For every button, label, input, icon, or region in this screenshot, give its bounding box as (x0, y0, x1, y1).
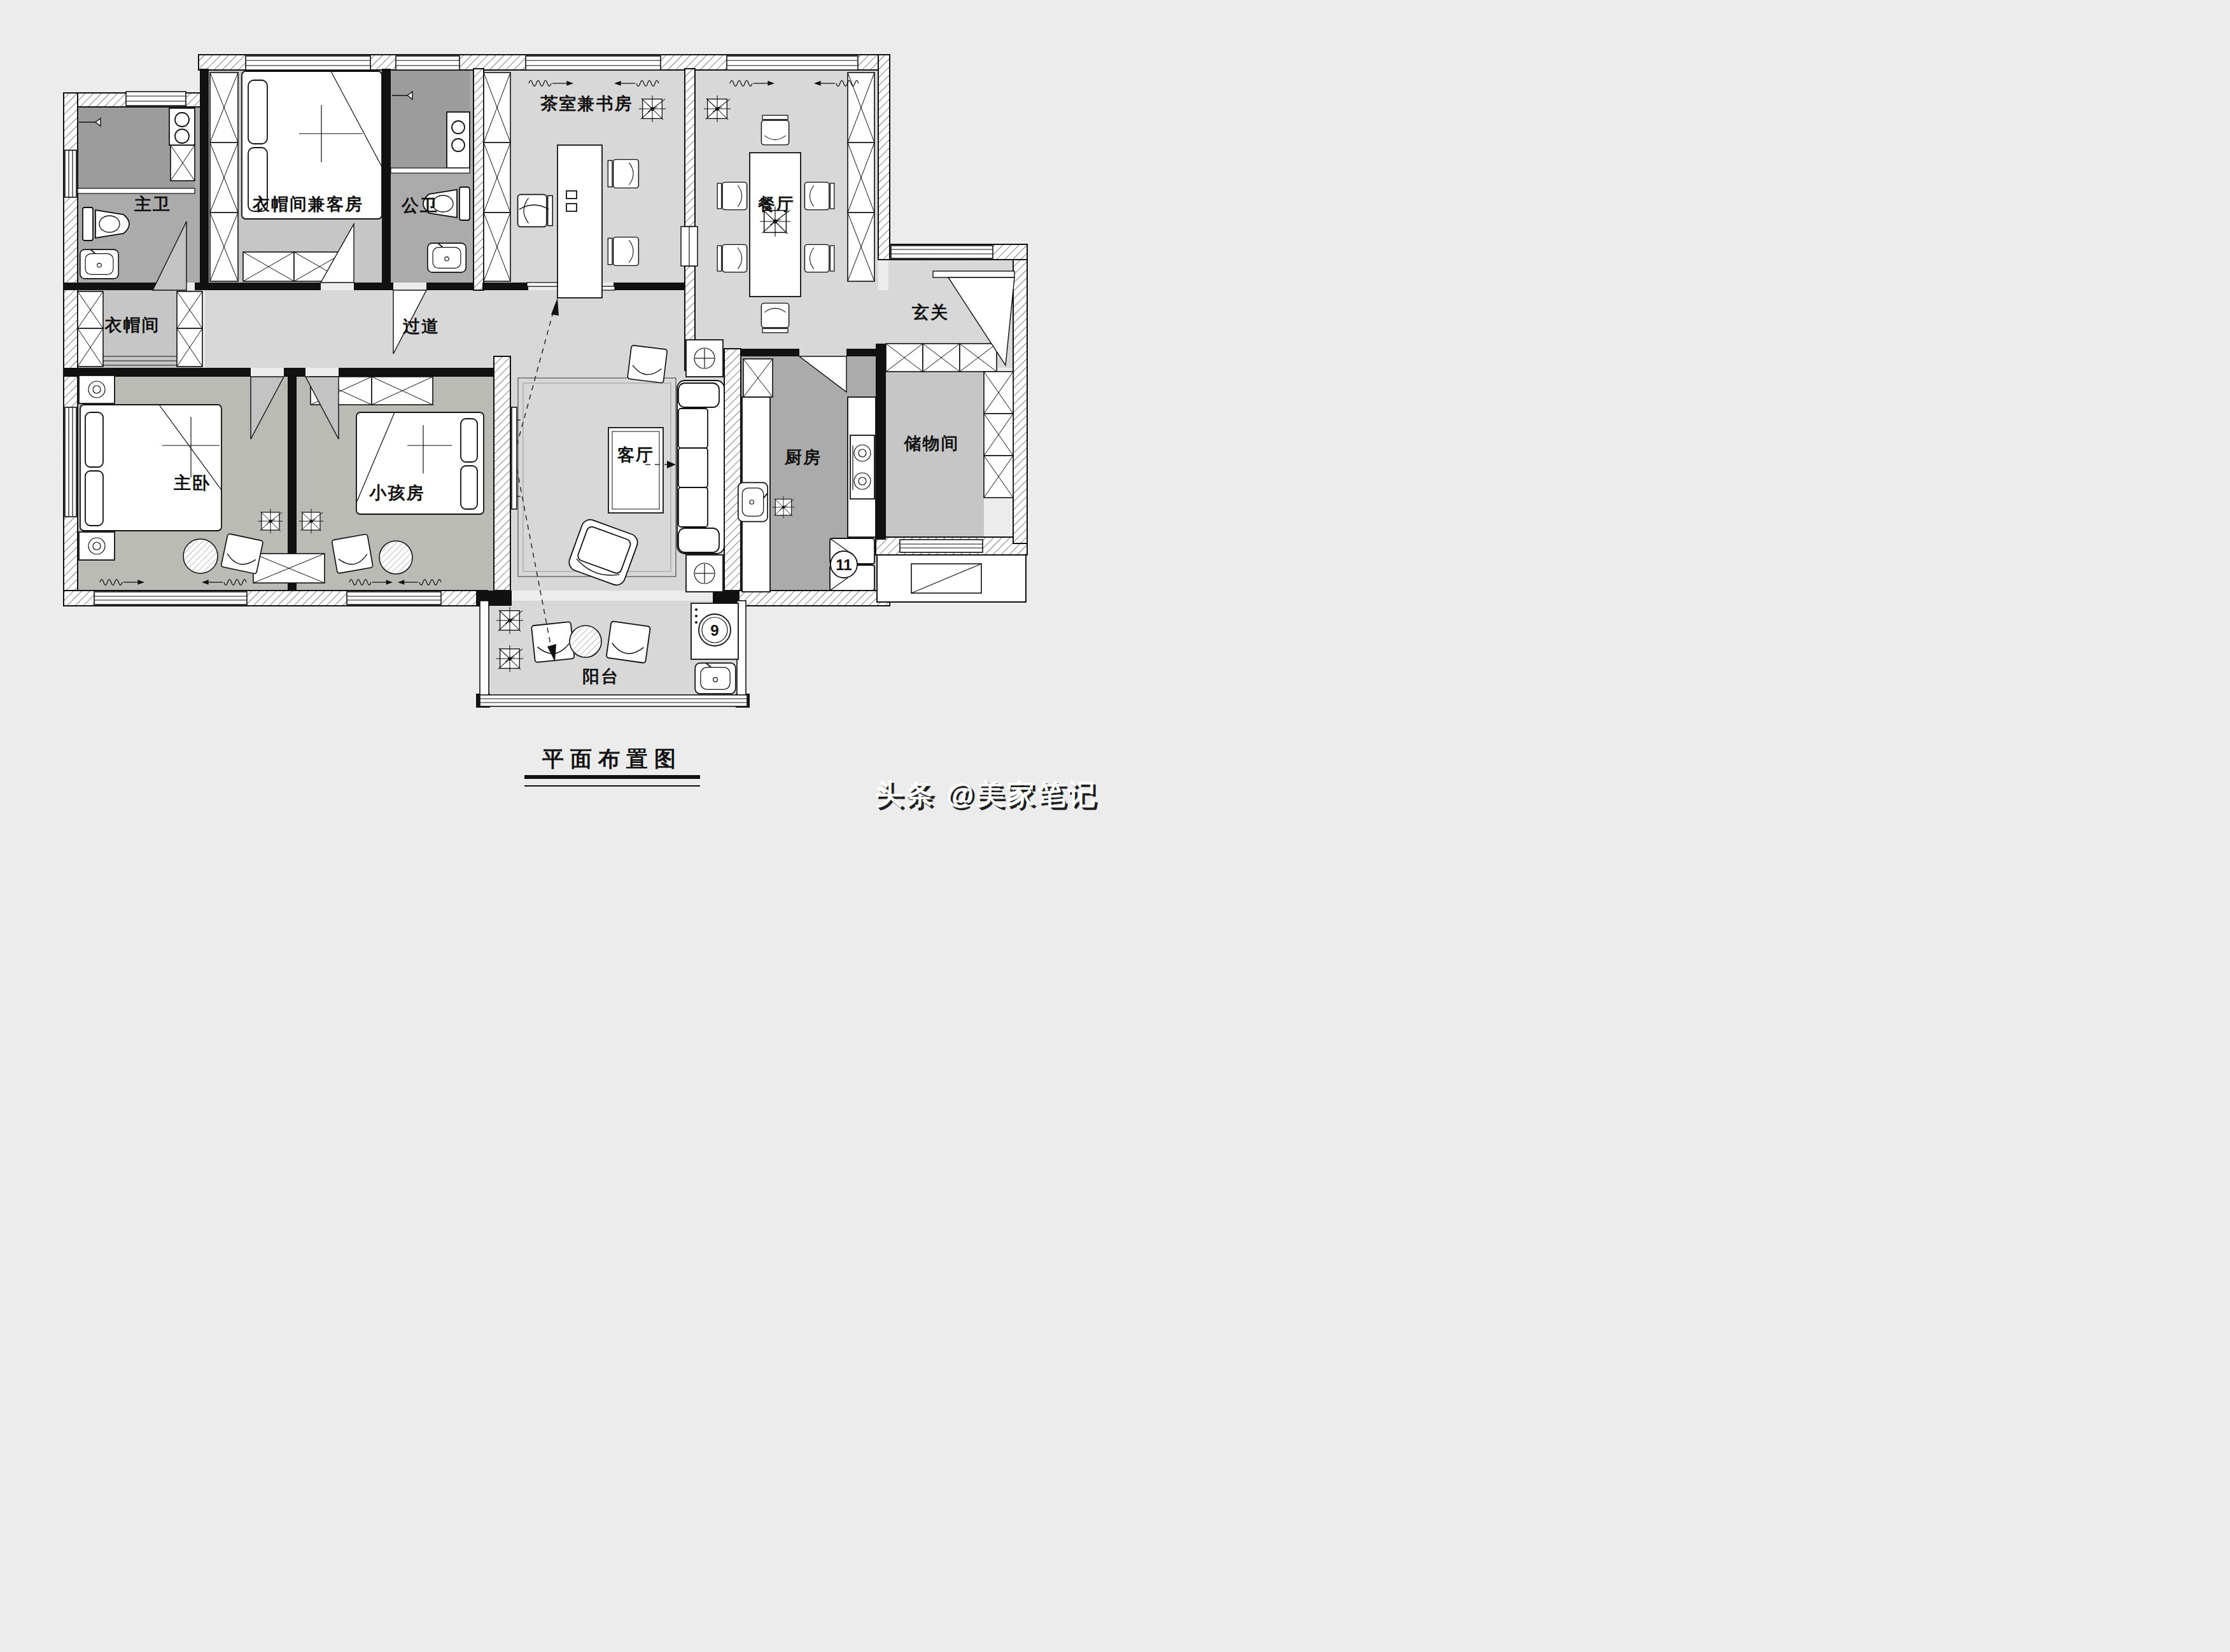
wardrobe-icon (210, 73, 238, 281)
room-floor-hallway (205, 290, 696, 368)
room-label-cloakroom: 衣帽间 (104, 316, 160, 335)
window-master-bath-top (126, 92, 186, 106)
title-text: 平面布置图 (542, 746, 682, 771)
bay-window-bench-icon (253, 554, 325, 583)
watermark: 头条 @美家笔记 (875, 776, 1098, 813)
tea-bookcase-icon (484, 73, 510, 281)
floor-plan-page: 11 9 主卫 衣帽间兼客房 公卫 茶室兼书房 餐厅 衣帽间 过道 玄关 主卧 … (0, 0, 1115, 826)
plant-icon (496, 645, 523, 672)
armchair-icon (518, 195, 553, 227)
room-label-cloak-guest: 衣帽间兼客房 (252, 195, 363, 214)
entry-shoe-cabinet-icon (886, 344, 997, 372)
window-guest-top (246, 56, 370, 70)
window-master-bedroom-left (65, 407, 76, 517)
window-master-bath-left (65, 150, 76, 197)
window-master-bedroom-bottom (94, 592, 247, 605)
master-bath-cabinet-icon (171, 145, 195, 181)
rug-icon (183, 539, 218, 573)
title-underline-thin (524, 785, 700, 787)
room-floor-storage (886, 372, 984, 537)
washing-machine-icon: 9 (691, 603, 738, 659)
window-tea-top (526, 56, 661, 70)
drawing-title: 平面布置图 (524, 746, 700, 787)
room-label-master-bedroom: 主卧 (173, 473, 211, 493)
chair-icon (607, 621, 650, 663)
sink-icon (428, 243, 466, 272)
title-underline-thick (524, 775, 700, 779)
coffee-table-icon (608, 428, 663, 513)
dining-chair-icon (804, 244, 834, 272)
floor-plan-drawing: 11 9 主卫 衣帽间兼客房 公卫 茶室兼书房 餐厅 衣帽间 过道 玄关 主卧 … (0, 0, 1115, 826)
plant-icon (773, 496, 795, 519)
plant-icon (496, 607, 523, 634)
room-label-master-bath: 主卫 (134, 195, 171, 214)
plant-icon (299, 509, 324, 534)
room-label-balcony: 阳台 (582, 667, 619, 686)
plant-icon (704, 95, 731, 122)
room-label-dining: 餐厅 (757, 195, 795, 214)
entry-screen-panel (681, 227, 698, 266)
window-dining-top (727, 56, 858, 70)
room-label-hallway: 过道 (403, 317, 440, 336)
room-label-kitchen: 厨房 (784, 448, 822, 467)
room-label-living: 客厅 (617, 445, 654, 465)
balcony-table-icon (570, 626, 601, 657)
chair-icon (608, 237, 638, 266)
side-table-icon (686, 340, 723, 377)
plant-icon (639, 95, 666, 122)
chair-icon (221, 533, 263, 574)
rug-icon (379, 541, 412, 574)
storage-cabinet-icon (984, 372, 1013, 498)
sink-icon (80, 249, 118, 279)
room-label-public-bath: 公卫 (401, 196, 438, 215)
desk-icon (557, 145, 602, 298)
dining-chair-icon (717, 244, 747, 272)
window-public-bath-top (396, 56, 459, 70)
window-storage-bottom (900, 540, 983, 552)
dining-cabinet-icon (848, 73, 874, 281)
room-label-kids-room: 小孩房 (369, 484, 425, 503)
shower-glass-icon (78, 188, 195, 193)
laundry-sink-icon (695, 663, 736, 694)
window-entry-top (891, 246, 993, 258)
dining-chair-icon (717, 182, 747, 209)
room-label-storage: 储物间 (904, 434, 960, 453)
sofa-icon (677, 381, 724, 554)
refrigerator-number: 11 (836, 556, 852, 573)
stove-icon (850, 435, 874, 499)
side-table-icon (686, 555, 723, 592)
chair-icon (332, 534, 373, 573)
kitchen-sink-icon (738, 482, 768, 521)
washing-machine-number: 9 (710, 622, 719, 639)
plant-icon (258, 509, 283, 534)
window-kids-bottom (347, 592, 441, 605)
chair-icon (628, 345, 668, 383)
room-label-tea-study: 茶室兼书房 (540, 94, 633, 113)
kitchen-tall-cabinet-icon (743, 359, 773, 397)
chair-icon (608, 160, 638, 188)
dining-chair-icon (761, 115, 789, 144)
dining-chair-icon (761, 303, 789, 332)
bed-icon (80, 405, 221, 531)
shower-glass-icon (391, 168, 470, 173)
room-label-entry: 玄关 (911, 303, 949, 322)
dining-chair-icon (804, 182, 834, 209)
